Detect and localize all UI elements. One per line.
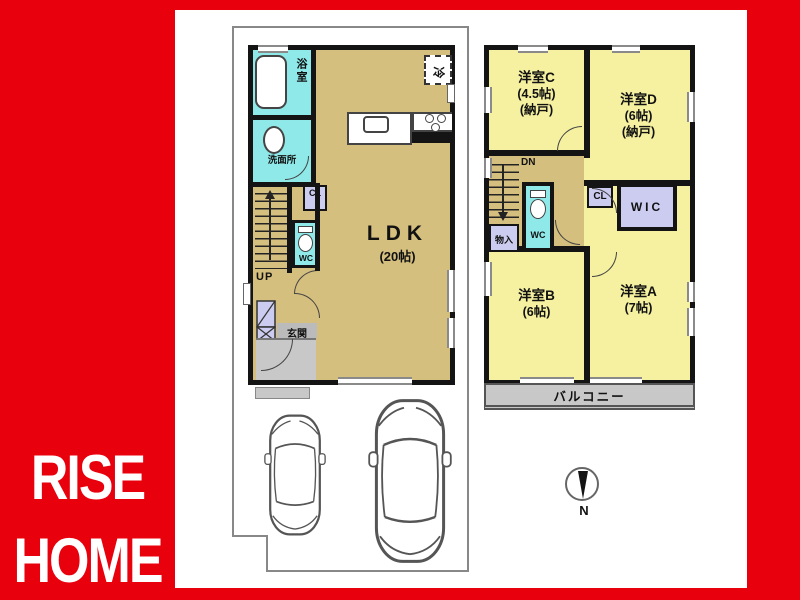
wc-2f-label: WC	[526, 230, 550, 240]
door-arc	[295, 293, 320, 318]
brand-home: HOME	[0, 520, 175, 600]
up-arrow-icon	[265, 190, 275, 199]
stove-burner-icon	[431, 123, 440, 132]
refrigerator-box: 冷	[424, 55, 452, 85]
shoe-cabinet-icon	[256, 300, 276, 342]
toilet-tank-icon	[298, 226, 313, 233]
dn-label: DN	[521, 158, 533, 168]
balcony-label: バルコニー	[553, 386, 625, 405]
room-d-note: (納戸)	[587, 125, 690, 141]
wall	[311, 50, 316, 187]
ldk-size-label: (20帖)	[335, 246, 460, 265]
room-d-label: 洋室D	[587, 92, 690, 109]
window	[258, 45, 288, 53]
room-a-label: 洋室A	[587, 284, 690, 301]
window	[518, 45, 548, 53]
window	[687, 282, 695, 302]
door-gap	[243, 283, 251, 305]
room-b-label: 洋室B	[489, 288, 584, 305]
bathtub-icon	[255, 55, 287, 109]
room-d-label-block: 洋室D (6帖) (納戸)	[587, 92, 690, 140]
brand-logo: RISE HOME	[0, 438, 175, 600]
storage-closet: 物入	[489, 224, 519, 252]
room-d-size: (6帖)	[587, 109, 690, 125]
porch-step	[255, 387, 310, 399]
room-washroom	[253, 120, 311, 182]
wc-1f-label: WC	[295, 253, 317, 263]
refrigerator-label: 冷	[431, 66, 448, 78]
floor1-plan: 浴室 洗面所 UP CL WC	[248, 45, 455, 385]
storage-label: 物入	[491, 233, 517, 246]
up-label: UP	[256, 271, 273, 283]
door-arc	[557, 126, 582, 151]
door-arc	[592, 188, 617, 213]
window	[687, 308, 695, 336]
room-b-label-block: 洋室B (6帖)	[489, 288, 584, 321]
bathroom-label: 浴室	[293, 58, 309, 84]
window	[484, 262, 492, 296]
balcony: バルコニー	[484, 383, 695, 410]
stairs-arrow-line	[502, 164, 504, 214]
door-gap	[447, 84, 455, 103]
window	[484, 87, 492, 113]
stove-burner-icon	[437, 114, 446, 123]
room-c-label: 洋室C	[489, 70, 584, 87]
toilet-icon	[530, 199, 546, 219]
stairs-arrow-line	[269, 198, 271, 260]
window	[447, 270, 455, 312]
stove-burner-icon	[425, 114, 434, 123]
down-arrow-icon	[498, 212, 508, 221]
walk-in-closet: WIC	[617, 183, 677, 231]
entrance-label-band: 玄関	[277, 323, 317, 338]
room-wc-2f: WC	[522, 182, 554, 252]
floor2-plan: DN WC 物入 CL WIC 洋室C (4.5帖) (納戸) 洋室D (6帖)	[484, 45, 695, 385]
window	[447, 318, 455, 348]
toilet-tank-icon	[530, 190, 546, 198]
room-a-size: (7帖)	[587, 301, 690, 317]
compass-north-label: N	[569, 503, 599, 518]
wic-label: WIC	[621, 200, 673, 214]
room-a-label-block: 洋室A (7帖)	[587, 284, 690, 317]
window	[338, 377, 412, 385]
room-c-size: (4.5帖)	[489, 87, 584, 103]
washbasin-icon	[263, 126, 285, 154]
compass-icon	[565, 467, 599, 501]
room-c-note: (納戸)	[489, 103, 584, 119]
toilet-icon	[298, 234, 313, 252]
room-b-size: (6帖)	[489, 305, 584, 321]
car-icon-small	[263, 413, 327, 537]
ldk-label-block: LDK (20帖)	[335, 222, 460, 265]
door-arc	[592, 252, 617, 277]
ldk-label: LDK	[335, 222, 460, 246]
stairs-up	[255, 187, 287, 269]
car-icon-large	[368, 392, 452, 570]
window	[687, 92, 695, 122]
wall	[315, 183, 320, 271]
compass-needle-icon	[578, 471, 588, 499]
floorplan-flyer: RISE HOME 浴室 洗面所 UP CL WC	[0, 0, 800, 600]
door-arc	[294, 270, 318, 294]
kitchen-sink-icon	[363, 116, 389, 133]
kitchen-wall	[412, 132, 452, 143]
window	[484, 158, 492, 178]
room-c-label-block: 洋室C (4.5帖) (納戸)	[489, 70, 584, 118]
window	[612, 45, 640, 53]
brand-rise: RISE	[0, 438, 175, 520]
